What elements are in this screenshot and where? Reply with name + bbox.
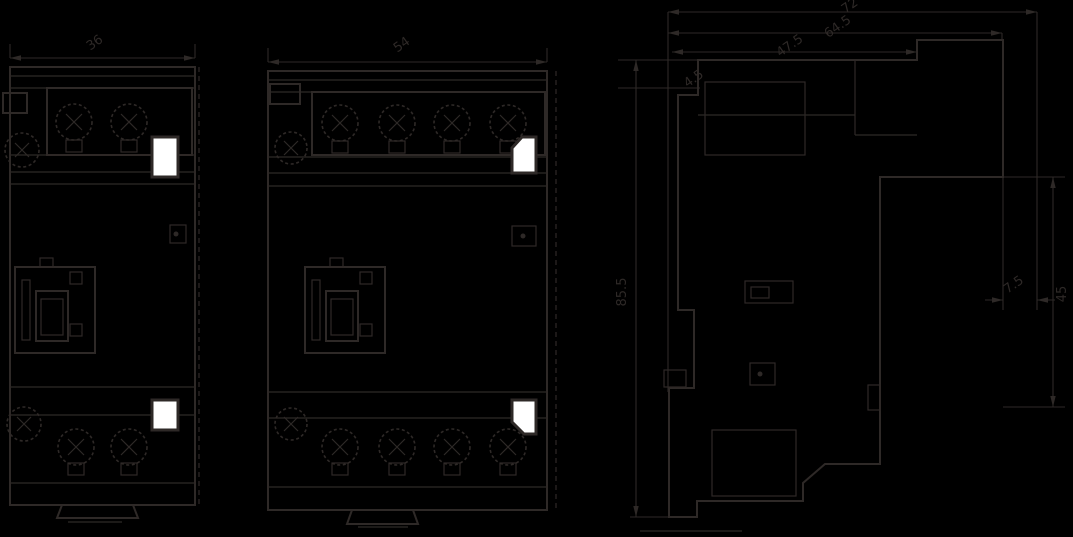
extension-lines [668,12,1037,392]
dim-label-width-2pole: 36 [84,32,106,54]
screw-slot [500,439,516,455]
arrowhead [672,49,683,54]
arrowhead [992,297,1003,302]
drawing-canvas: 36 [0,0,1073,537]
screw-slot [332,115,348,131]
indicator-window [512,400,536,434]
arrowhead [1050,177,1055,188]
clamp-tab [332,141,348,153]
screw-slot [389,115,405,131]
clamp-tab [66,140,82,152]
screw-slot [284,141,298,155]
dim-label-din-recess: 45 [1055,286,1070,303]
indicator-window [152,400,178,430]
screw-slot [121,114,137,130]
arrowhead [1026,9,1037,14]
switch-handle-inner [331,299,353,335]
arrowhead [991,30,1002,35]
switch-detent [360,272,372,284]
front-view-2pole: 36 [3,32,199,522]
indicator-window [152,137,178,177]
din-clip-tab [57,505,138,518]
clamp-tab [444,141,460,153]
arrowhead [1050,396,1055,407]
side-view: 72 64.5 47.5 4.5 85.5 7.5 45 [615,0,1070,531]
dim-label-din-step: 7.5 [1001,273,1027,297]
device-outline [10,67,195,505]
arrowhead [668,30,679,35]
terminal-funnel [705,82,805,155]
manual-switch [305,258,385,353]
din-clip-housing [712,430,796,496]
front-view-4pole: 54 [268,34,556,527]
arrowhead [906,49,917,54]
screw-slot [389,439,405,455]
clamp-tab [389,141,405,153]
dim-label-front-depth: 47.5 [774,32,806,61]
marking-inner [751,287,769,298]
arrowhead [1037,297,1048,302]
switch-handle-inner [41,299,63,335]
cover-edge-lines [268,157,547,186]
din-latch-tab [868,385,880,410]
top-cover-lines [10,76,195,88]
dim-label-width-4pole: 54 [391,34,413,56]
switch-slot [312,280,320,340]
arrowhead [668,9,679,14]
dim-label-body-depth: 64.5 [822,13,854,42]
screw-slot [17,417,31,431]
switch-detent [70,272,82,284]
switch-detent [360,324,372,336]
side-profile-outline [669,40,1003,517]
marking-dot [521,234,526,239]
screw-slot [444,439,460,455]
switch-tab [330,258,343,267]
bottom-cover-lines [268,392,547,487]
dimension-drawing: 36 [0,0,1073,537]
clamp-tab [121,140,137,152]
switch-tab [40,258,53,267]
marking-dot [174,232,179,237]
screw-slot [121,439,137,455]
screw-slot [332,439,348,455]
manual-switch [15,258,95,353]
front-notch [664,370,686,387]
screw-slot [66,114,82,130]
arrowhead [268,59,279,64]
arrowhead [536,59,547,64]
arrowhead [633,506,638,517]
top-left-lug [270,84,300,104]
arrowhead [633,60,638,71]
switch-detent [70,324,82,336]
switch-slot [22,280,30,340]
indicator-window [512,137,536,173]
screw-slot [68,439,84,455]
screw-slot [444,115,460,131]
dim-label-height: 85.5 [615,278,630,307]
arrowhead [10,55,21,60]
arrowhead [184,55,195,60]
top-left-lug [3,93,27,113]
top-cover-lines [268,80,547,92]
terminal-cover-lines [698,60,917,135]
screw-slot [284,417,298,431]
terminal-cover [312,92,545,155]
extension-lines [618,60,700,517]
marking-dot [758,372,763,377]
screw-slot [500,115,516,131]
din-clip-tab [347,510,418,524]
